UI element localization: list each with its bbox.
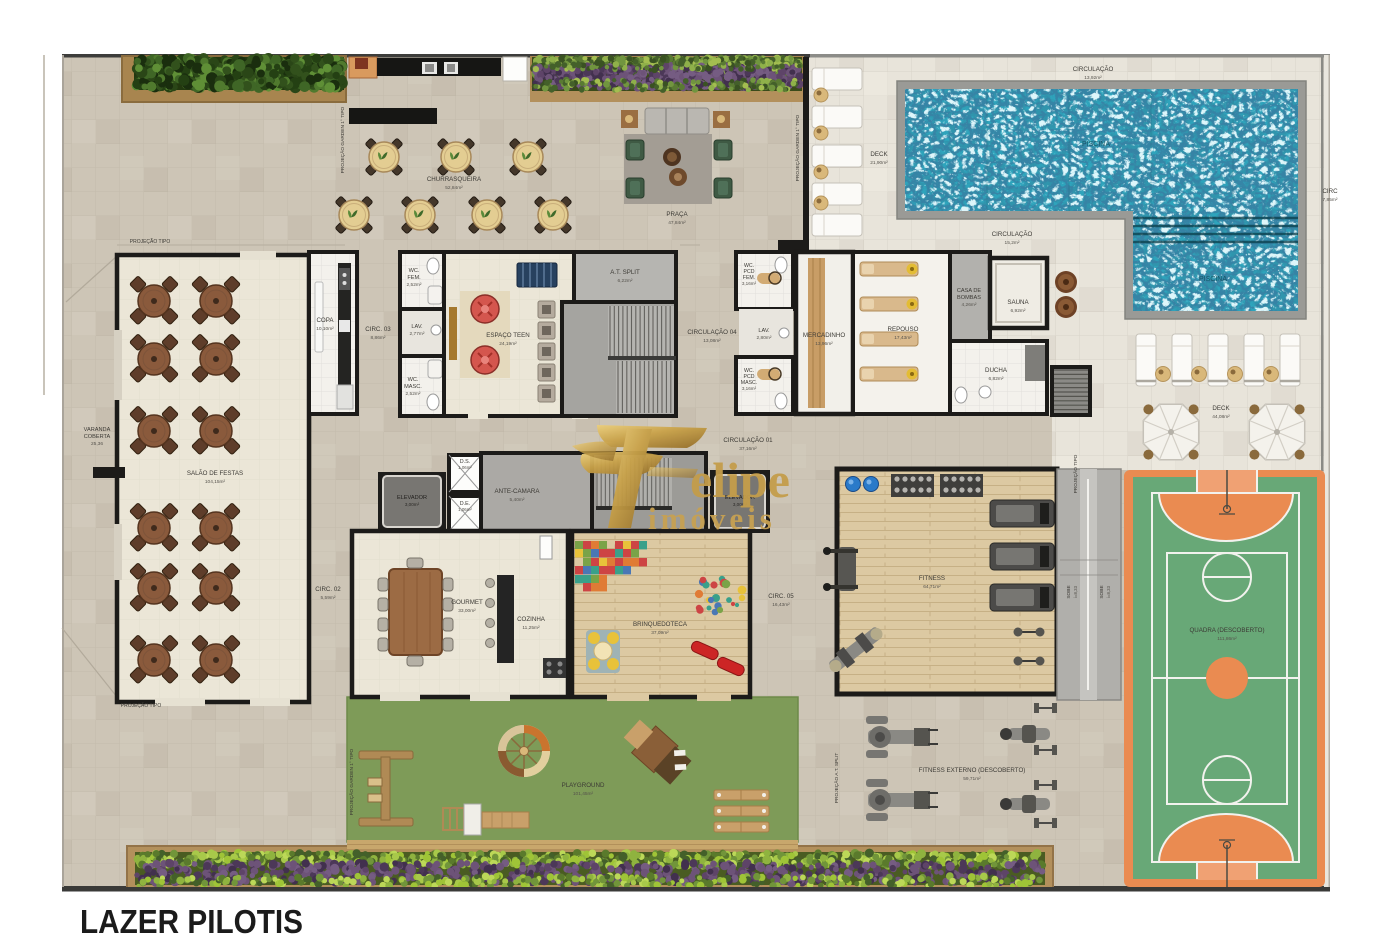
svg-text:47,84m²: 47,84m²: [668, 220, 686, 226]
svg-text:6,82m²: 6,82m²: [989, 376, 1004, 382]
svg-text:7,85m²: 7,85m²: [1323, 197, 1338, 203]
svg-text:elipe: elipe: [690, 452, 790, 508]
svg-text:DECK: DECK: [1212, 405, 1230, 412]
svg-text:PROJEÇÃO TIPO: PROJEÇÃO TIPO: [130, 238, 171, 245]
svg-text:17,43m²: 17,43m²: [894, 335, 912, 341]
svg-text:DUCHA: DUCHA: [985, 367, 1008, 374]
svg-text:25,36: 25,36: [91, 441, 103, 447]
svg-text:imóveis: imóveis: [648, 501, 776, 536]
svg-text:24,19m²: 24,19m²: [499, 341, 517, 347]
svg-text:1,06m²: 1,06m²: [458, 465, 472, 470]
svg-text:13,08m²: 13,08m²: [703, 338, 721, 344]
svg-text:BRINQUEDOTECA: BRINQUEDOTECA: [633, 621, 688, 628]
svg-text:PROJEÇÃO GARDEN 1° TIPO: PROJEÇÃO GARDEN 1° TIPO: [794, 114, 801, 181]
svg-text:ELEVADOR: ELEVADOR: [397, 495, 427, 501]
svg-text:ESPAÇO TEEN: ESPAÇO TEEN: [486, 332, 529, 339]
svg-text:CIRC. 02: CIRC. 02: [315, 586, 341, 593]
svg-text:2,52m²: 2,52m²: [406, 391, 421, 397]
svg-text:DECK: DECK: [870, 151, 888, 158]
svg-text:21,90m²: 21,90m²: [870, 160, 888, 166]
svg-text:FEM.: FEM.: [407, 275, 421, 281]
svg-text:64,71m²: 64,71m²: [923, 584, 941, 590]
svg-text:CHURRASQUEIRA: CHURRASQUEIRA: [427, 176, 482, 183]
svg-text:SOBE: SOBE: [1066, 585, 1072, 598]
svg-text:111,86m²: 111,86m²: [1217, 636, 1237, 642]
svg-text:LAV.: LAV.: [411, 324, 423, 330]
svg-text:A.T. SPLIT: A.T. SPLIT: [610, 269, 640, 276]
svg-text:COPA: COPA: [316, 317, 334, 324]
svg-text:SAUNA: SAUNA: [1007, 299, 1029, 306]
svg-text:44,08m²: 44,08m²: [1212, 414, 1230, 420]
svg-text:6,22m²: 6,22m²: [618, 278, 633, 284]
svg-text:PROJEÇÃO A.T. SPLIT: PROJEÇÃO A.T. SPLIT: [833, 753, 840, 803]
svg-text:13,96m²: 13,96m²: [815, 341, 833, 347]
svg-text:QUADRA (DESCOBERTO): QUADRA (DESCOBERTO): [1189, 627, 1264, 634]
svg-text:WC.: WC.: [408, 377, 419, 383]
svg-text:2,77m²: 2,77m²: [410, 331, 425, 337]
svg-text:BOMBAS: BOMBAS: [957, 295, 981, 301]
svg-text:WC.: WC.: [409, 268, 420, 274]
svg-text:GOURMET: GOURMET: [451, 599, 483, 606]
svg-text:1,06m²: 1,06m²: [458, 507, 472, 512]
svg-text:3,16m²: 3,16m²: [742, 386, 757, 391]
svg-text:CIRC. 05: CIRC. 05: [768, 593, 794, 600]
svg-text:10,10m²: 10,10m²: [316, 326, 334, 332]
svg-text:CIRCULAÇÃO 04: CIRCULAÇÃO 04: [687, 329, 737, 336]
svg-text:8,86m²: 8,86m²: [371, 335, 386, 341]
svg-text:PRAÇA: PRAÇA: [666, 211, 688, 218]
svg-text:VARANDA: VARANDA: [84, 427, 111, 433]
svg-text:PLAYGROUND: PLAYGROUND: [562, 782, 605, 789]
svg-text:CIRC: CIRC: [1322, 188, 1338, 195]
svg-text:CASA DE: CASA DE: [957, 288, 982, 294]
svg-text:3,16m²: 3,16m²: [742, 281, 757, 286]
svg-text:5,40m²: 5,40m²: [510, 497, 525, 503]
svg-text:33,00m²: 33,00m²: [458, 608, 476, 614]
svg-text:13,92m²: 13,92m²: [1084, 75, 1102, 81]
svg-text:2,80m²: 2,80m²: [757, 335, 772, 341]
svg-text:COBERTA: COBERTA: [84, 434, 111, 440]
svg-text:LAV.: LAV.: [758, 328, 770, 334]
svg-text:COZINHA: COZINHA: [517, 616, 546, 623]
svg-text:CIRC. 03: CIRC. 03: [365, 326, 391, 333]
svg-text:LAZER PILOTIS: LAZER PILOTIS: [80, 903, 303, 940]
svg-text:PISCINA: PISCINA: [1082, 141, 1110, 148]
svg-text:101,45m²: 101,45m²: [573, 791, 594, 797]
svg-text:FITNESS: FITNESS: [919, 575, 945, 582]
svg-text:104,15m²: 104,15m²: [205, 479, 226, 485]
svg-text:59,71m²: 59,71m²: [963, 776, 981, 782]
svg-text:16,43m²: 16,43m²: [772, 602, 790, 608]
svg-text:2,52m²: 2,52m²: [407, 282, 422, 288]
svg-text:SALÃO DE FESTAS: SALÃO DE FESTAS: [187, 470, 243, 477]
svg-text:PROJEÇÃO TIPO: PROJEÇÃO TIPO: [1072, 454, 1079, 493]
svg-text:11,25m²: 11,25m²: [522, 625, 540, 631]
svg-text:PROJEÇÃO GARDEN 1° TIPO: PROJEÇÃO GARDEN 1° TIPO: [339, 106, 346, 173]
svg-text:MERCADINHO: MERCADINHO: [803, 332, 845, 339]
svg-text:ANTE-CAMARA: ANTE-CAMARA: [494, 488, 540, 495]
svg-text:SOBE: SOBE: [1099, 585, 1105, 598]
svg-text:CIRCULAÇÃO: CIRCULAÇÃO: [992, 231, 1033, 238]
svg-text:3,00m²: 3,00m²: [405, 502, 420, 507]
svg-text:37,09m²: 37,09m²: [651, 630, 669, 636]
svg-text:i=8,33: i=8,33: [1106, 585, 1111, 598]
svg-text:6,92m²: 6,92m²: [1011, 308, 1026, 314]
svg-text:15,2m²: 15,2m²: [1005, 240, 1020, 246]
svg-text:PROJEÇÃO GARDEN 1° TIPO: PROJEÇÃO GARDEN 1° TIPO: [348, 748, 355, 815]
svg-text:MASC.: MASC.: [404, 384, 422, 390]
svg-text:5,59m²: 5,59m²: [321, 595, 336, 601]
svg-text:REPOUSO: REPOUSO: [888, 326, 919, 333]
svg-text:PROJEÇÃO TIPO: PROJEÇÃO TIPO: [121, 702, 162, 709]
svg-text:52,84m²: 52,84m²: [445, 185, 463, 191]
svg-text:CIRCULAÇÃO 01: CIRCULAÇÃO 01: [723, 437, 773, 444]
svg-text:PISCINA: PISCINA: [1199, 276, 1227, 283]
svg-text:i=8,33: i=8,33: [1073, 585, 1078, 598]
svg-text:4,26m²: 4,26m²: [962, 302, 977, 308]
svg-text:FITNESS EXTERNO (DESCOBERTO): FITNESS EXTERNO (DESCOBERTO): [919, 767, 1026, 774]
svg-text:CIRCULAÇÃO: CIRCULAÇÃO: [1073, 66, 1114, 73]
